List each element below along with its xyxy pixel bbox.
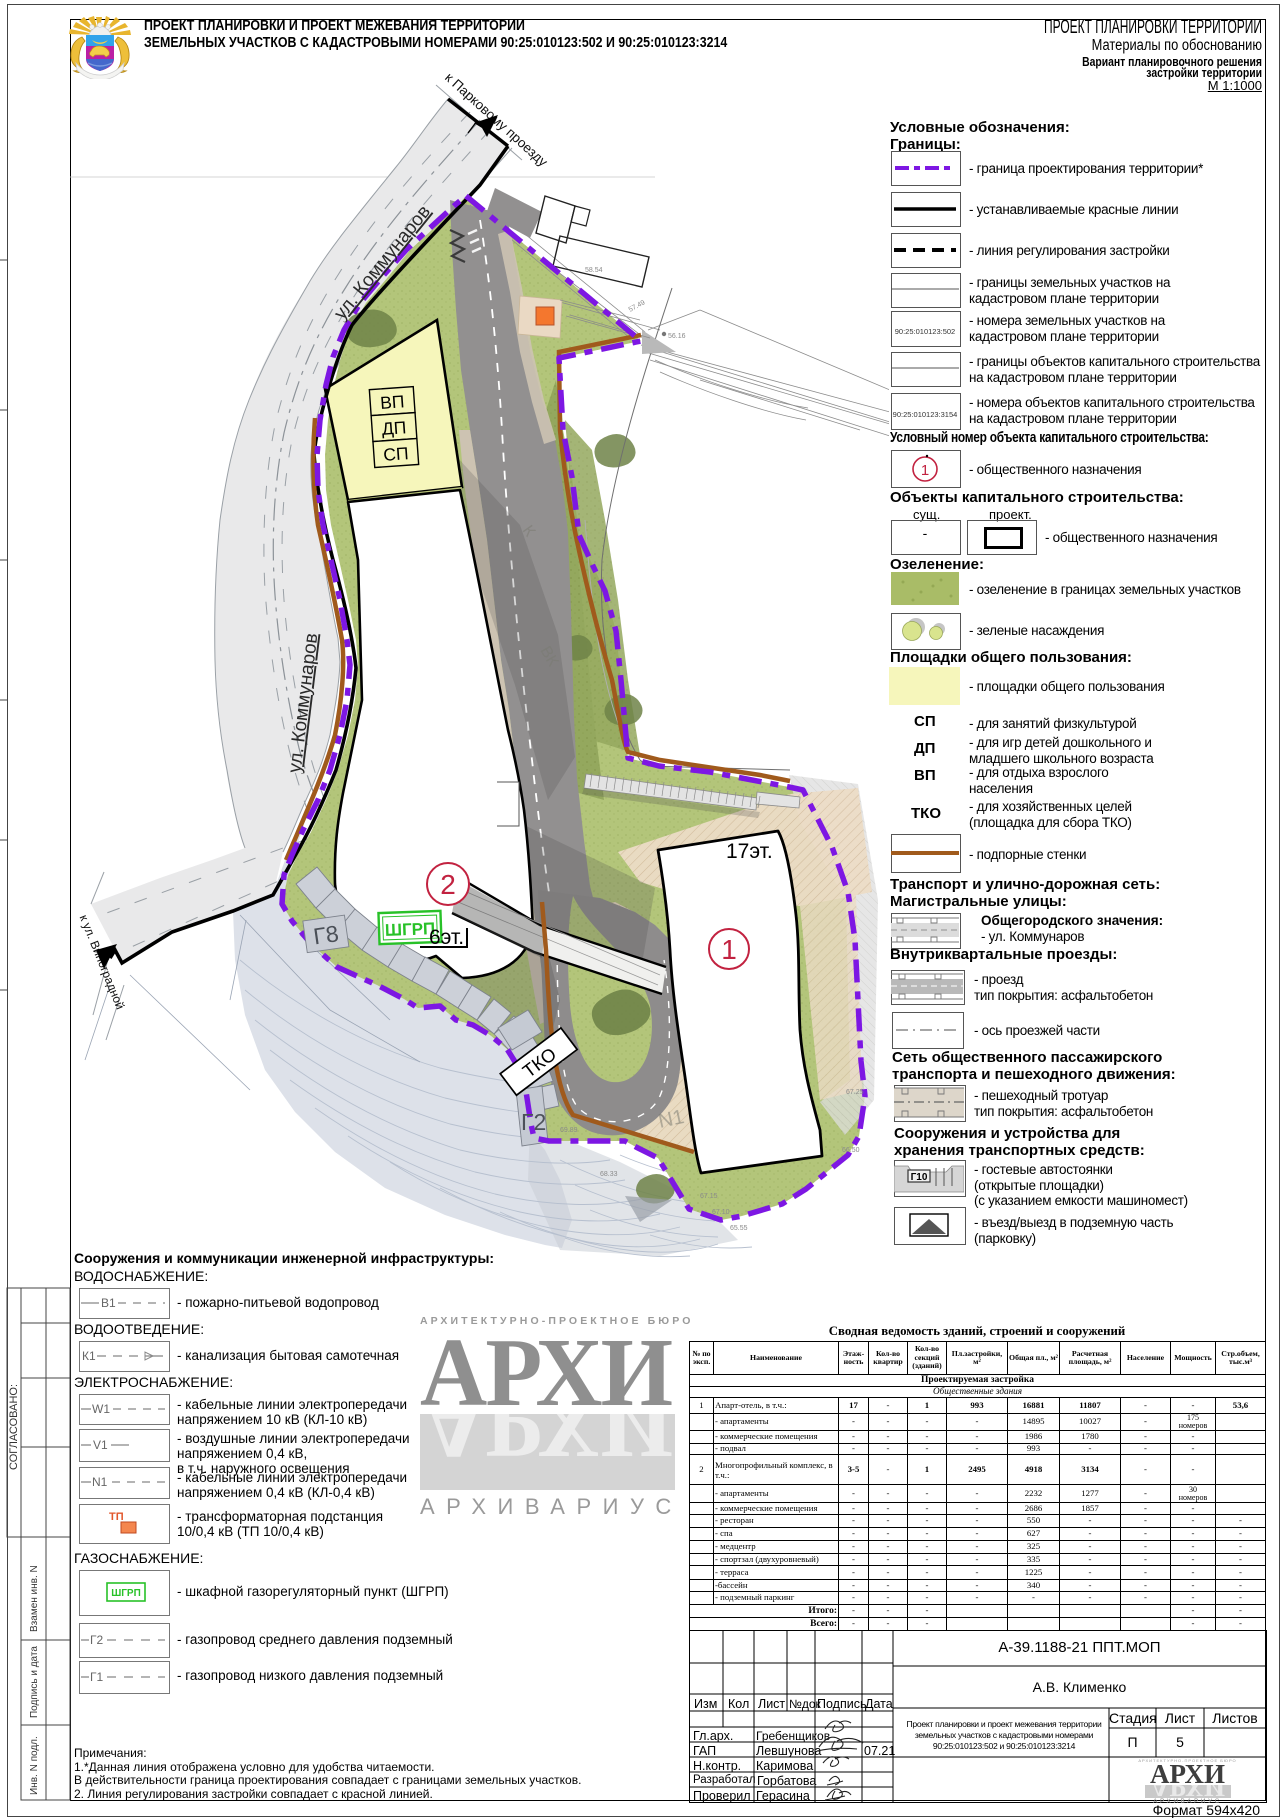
svg-text:57.49: 57.49: [628, 299, 647, 313]
svg-text:Г8: Г8: [312, 920, 341, 949]
svg-text:ДП: ДП: [381, 417, 407, 439]
svg-text:67.25: 67.25: [846, 1089, 864, 1096]
svg-text:Г2: Г2: [90, 1633, 103, 1647]
svg-text:ТП: ТП: [109, 1511, 124, 1523]
svg-text:Г2: Г2: [521, 1109, 546, 1135]
svg-text:69.89: 69.89: [560, 1127, 578, 1134]
svg-text:67.10: 67.10: [712, 1209, 730, 1216]
svg-text:В1: В1: [101, 1296, 116, 1310]
svg-text:N1: N1: [92, 1475, 108, 1489]
svg-text:Взамен инв. N: Взамен инв. N: [29, 1565, 40, 1632]
svg-text:66.50: 66.50: [842, 1147, 860, 1154]
svg-text:К1: К1: [82, 1349, 96, 1363]
svg-text:ШГРП: ШГРП: [385, 919, 436, 940]
svg-text:ВП: ВП: [379, 391, 405, 413]
svg-text:58.54: 58.54: [585, 267, 603, 274]
svg-text:68.33: 68.33: [600, 1171, 618, 1178]
svg-text:1: 1: [721, 934, 737, 965]
svg-text:СП: СП: [383, 443, 410, 465]
svg-text:Инв. N подл.: Инв. N подл.: [29, 1736, 40, 1795]
svg-text:6эт.: 6эт.: [429, 926, 464, 949]
svg-text:ШГРП: ШГРП: [111, 1588, 141, 1599]
svg-text:Подпись и дата: Подпись и дата: [29, 1646, 40, 1718]
svg-text:Г10: Г10: [911, 1172, 928, 1183]
svg-text:1: 1: [921, 462, 929, 479]
svg-text:СОГЛАСОВАНО:: СОГЛАСОВАНО:: [8, 1384, 20, 1470]
svg-text:67.15: 67.15: [700, 1193, 718, 1200]
svg-text:2: 2: [440, 869, 456, 900]
svg-text:56.16: 56.16: [668, 333, 686, 340]
svg-text:17эт.: 17эт.: [726, 840, 773, 863]
svg-text:V1: V1: [93, 1438, 108, 1452]
svg-text:65.55: 65.55: [730, 1225, 748, 1232]
svg-text:Г1: Г1: [90, 1670, 103, 1684]
svg-text:W1: W1: [92, 1402, 110, 1416]
